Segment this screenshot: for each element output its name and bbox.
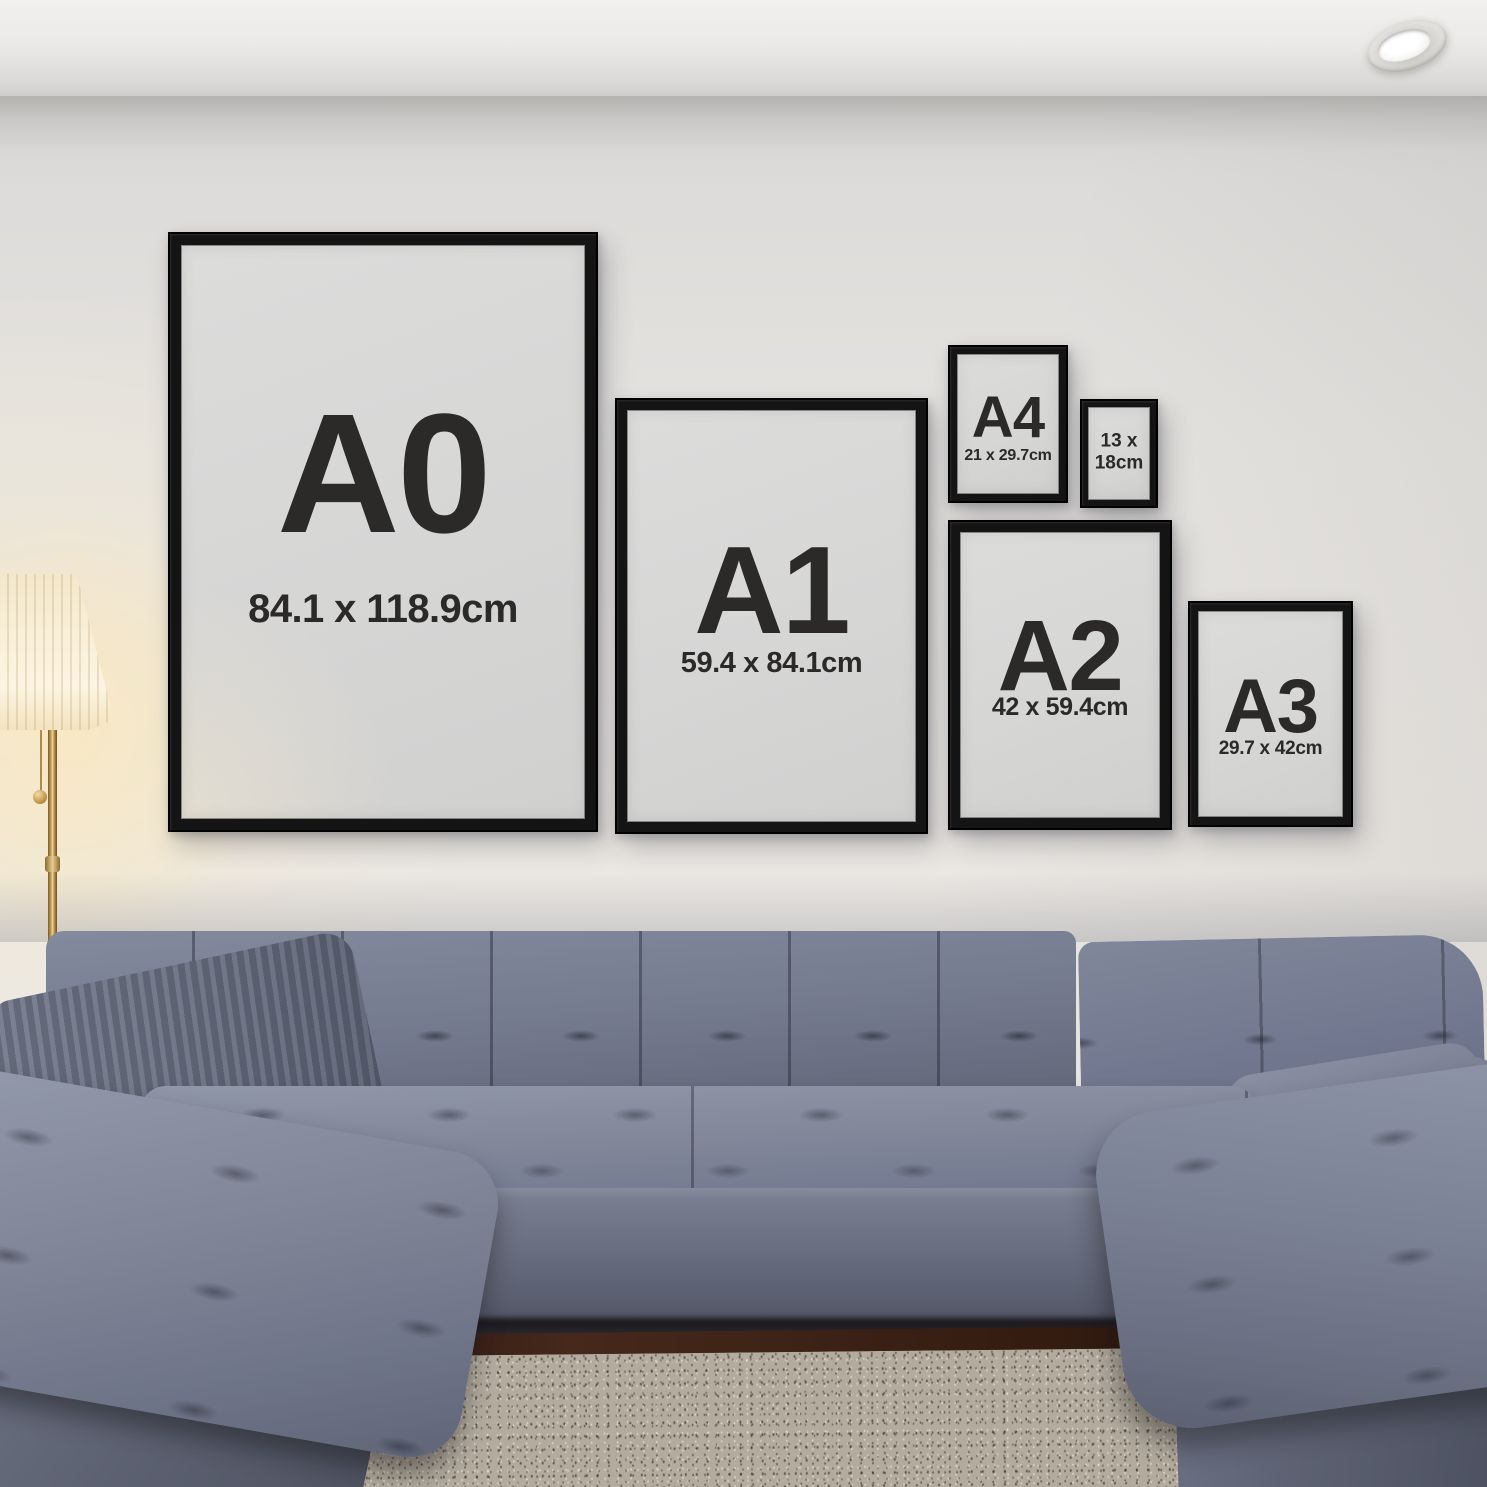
poster-13x18-dimensions: 13 x 18cm: [1088, 430, 1150, 475]
ceiling-wall-shadow: [0, 96, 1487, 150]
living-room-scene: A0 84.1 x 118.9cm A1 59.4 x 84.1cm A4 21…: [0, 0, 1487, 1487]
poster-a2-paper: A2 42 x 59.4cm: [960, 532, 1160, 818]
poster-13x18-dimensions-line2: 18cm: [1088, 453, 1150, 475]
poster-frame-a4: A4 21 x 29.7cm: [948, 345, 1068, 503]
poster-frame-13x18: 13 x 18cm: [1080, 399, 1158, 508]
lamp-pull-chain: [40, 728, 42, 792]
ceiling: [0, 0, 1487, 96]
poster-a0-dimensions: 84.1 x 118.9cm: [181, 589, 585, 629]
poster-frame-a1: A1 59.4 x 84.1cm: [615, 398, 928, 834]
poster-a1-size-label: A1: [627, 529, 916, 653]
lamp-pull-chain-ball: [33, 790, 47, 804]
poster-a3-paper: A3 29.7 x 42cm: [1198, 611, 1343, 817]
poster-a4-size-label: A4: [957, 389, 1059, 447]
poster-a1-dimensions: 59.4 x 84.1cm: [627, 649, 916, 678]
poster-a3-dimensions: 29.7 x 42cm: [1198, 739, 1343, 758]
poster-a0-size-label: A0: [181, 389, 585, 559]
poster-a0-paper: A0 84.1 x 118.9cm: [181, 245, 585, 819]
poster-frame-a2: A2 42 x 59.4cm: [948, 520, 1172, 830]
sofa-right-chaise-cushion: [1088, 1059, 1487, 1437]
poster-a2-dimensions: 42 x 59.4cm: [960, 695, 1160, 720]
poster-frame-a3: A3 29.7 x 42cm: [1188, 601, 1353, 827]
poster-a1-paper: A1 59.4 x 84.1cm: [627, 410, 916, 822]
lamp-pole-joint: [45, 856, 60, 872]
poster-a4-paper: A4 21 x 29.7cm: [957, 354, 1059, 494]
poster-a2-size-label: A2: [960, 606, 1160, 706]
poster-13x18-paper: 13 x 18cm: [1088, 407, 1150, 500]
poster-a3-size-label: A3: [1198, 669, 1343, 745]
poster-frame-a0: A0 84.1 x 118.9cm: [168, 232, 598, 832]
poster-a4-dimensions: 21 x 29.7cm: [957, 448, 1059, 464]
ceiling-light-bulb: [1374, 23, 1435, 68]
poster-13x18-dimensions-line1: 13 x: [1088, 430, 1150, 452]
